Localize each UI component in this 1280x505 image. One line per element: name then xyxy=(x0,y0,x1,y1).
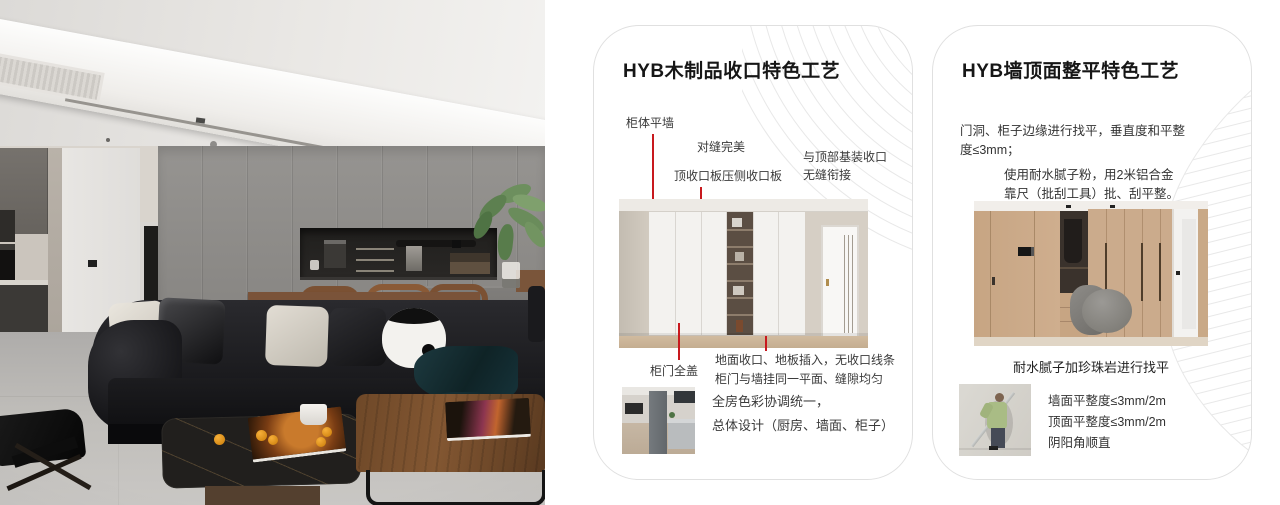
thumb-gray-cabinet xyxy=(649,391,667,454)
shelf-item xyxy=(733,286,744,295)
putty-paragraph-line1: 使用耐水腻子粉，用2米铝合金 xyxy=(1004,166,1173,185)
render-cabinet-right xyxy=(753,212,805,335)
callout-line xyxy=(678,323,680,360)
card-wall-leveling-craft: HYB墙顶面整平特色工艺 门洞、柜子边缘进行找平，垂直度和平整 度≤3mm； 使… xyxy=(932,25,1252,480)
wd-hanging-clothes xyxy=(1064,219,1082,263)
thumb-lower-cabinet xyxy=(668,423,695,449)
callout-perfect-seam: 对缝完美 xyxy=(697,138,745,156)
worker-thumbnail xyxy=(959,384,1031,456)
shelf-item xyxy=(735,252,744,261)
callout-top-board: 顶收口板压侧收口板 xyxy=(674,167,782,185)
leveling-paragraph-line2: 度≤3mm； xyxy=(960,141,1020,160)
worker-pants xyxy=(991,428,1005,448)
render-ceiling xyxy=(619,199,868,211)
render-floor xyxy=(619,336,868,348)
card2-title: HYB墙顶面整平特色工艺 xyxy=(962,56,1179,83)
worker-head xyxy=(995,393,1004,402)
shelf-item xyxy=(736,320,743,332)
wd-wood-edge xyxy=(1198,209,1208,337)
wd-spotlight xyxy=(1110,205,1115,208)
wd-white-door xyxy=(1172,209,1200,337)
wd-handle xyxy=(1159,243,1161,301)
page: HYB木制品收口特色工艺 柜体平墙 对缝完美 顶收口板压侧收口板 与顶部基装收口… xyxy=(0,0,1280,505)
design-note-1: 全房色彩协调统一， xyxy=(712,393,829,411)
flatness-specs: 墙面平整度≤3mm/2m 顶面平整度≤3mm/2m 阴阳角顺直 xyxy=(1048,391,1166,454)
wardrobe-photo xyxy=(974,201,1208,346)
wd-control-panel xyxy=(1018,247,1034,256)
leveling-paragraph-line1: 门洞、柜子边缘进行找平，垂直度和平整 xyxy=(960,122,1185,141)
spec-wall-flatness: 墙面平整度≤3mm/2m xyxy=(1048,391,1166,412)
callout-door-full-cover: 柜门全盖 xyxy=(650,362,698,380)
door-knob xyxy=(826,279,829,286)
shelf-item xyxy=(732,218,742,227)
callout-line xyxy=(765,336,767,351)
thumb-upper-cabinet xyxy=(674,391,695,403)
wd-niche xyxy=(1060,211,1088,293)
wd-door-handle xyxy=(992,277,995,285)
callout-floor-joint-2: 柜门与墙挂同一平面、缝隙均匀 xyxy=(715,370,883,388)
wd-floor xyxy=(974,337,1208,346)
cabinet-render-image xyxy=(619,199,868,348)
wd-door-handle xyxy=(1176,271,1180,275)
render-cabinet-left xyxy=(649,212,727,335)
design-note-2: 总体设计（厨房、墙面、柜子） xyxy=(712,417,894,435)
thumb-tv xyxy=(625,403,643,414)
photo-vignette xyxy=(0,0,545,505)
callout-top-joint-1: 与顶部基装收口 xyxy=(803,148,887,166)
living-room-photo xyxy=(0,0,545,505)
callout-floor-joint-1: 地面收口、地板插入，无收口线条 xyxy=(715,351,895,369)
spec-ceiling-flatness: 顶面平整度≤3mm/2m xyxy=(1048,412,1166,433)
wd-spotlight xyxy=(1066,205,1071,208)
render-left-wall xyxy=(619,211,649,336)
wd-bean-bag xyxy=(1082,289,1132,333)
image-caption: 耐水腻子加珍珠岩进行找平 xyxy=(974,357,1208,376)
render-floor-shadow xyxy=(619,333,868,336)
thumb-plant xyxy=(669,412,675,418)
callout-cabinet-flush-wall: 柜体平墙 xyxy=(626,114,674,132)
render-door xyxy=(821,225,859,341)
card1-title: HYB木制品收口特色工艺 xyxy=(623,56,840,83)
wd-handle xyxy=(1141,243,1143,301)
callout-top-joint-2: 无缝衔接 xyxy=(803,166,851,184)
render-shelf-niche xyxy=(727,212,753,335)
card-wood-finish-craft: HYB木制品收口特色工艺 柜体平墙 对缝完美 顶收口板压侧收口板 与顶部基装收口… xyxy=(593,25,913,480)
wd-left-wall xyxy=(974,211,1060,337)
interior-thumbnail xyxy=(622,387,695,454)
spec-corners: 阴阳角顺直 xyxy=(1048,433,1166,454)
floor-line xyxy=(959,448,1031,450)
